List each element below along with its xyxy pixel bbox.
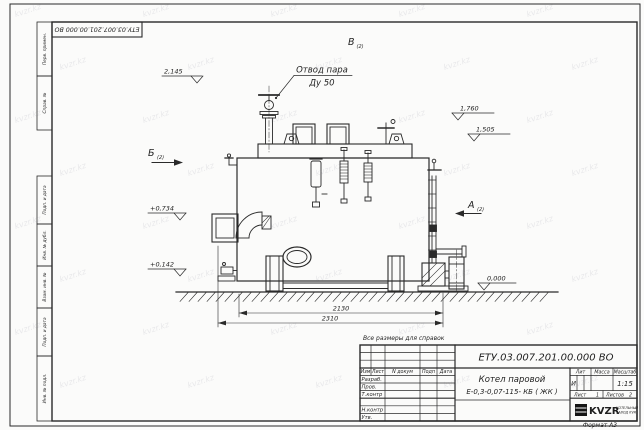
dim-inner-length: 2130	[333, 305, 350, 313]
tb-scale-header: Масштаб	[614, 370, 637, 376]
margin-label: Справ. №	[42, 92, 48, 113]
margin-strip: Перв. примен. Справ. № Подп. и дата Инв.…	[37, 22, 52, 421]
tb-scale-value: 1:15	[617, 380, 633, 388]
tb-row-razrab: Разраб.	[362, 377, 382, 383]
margin-label: Инв. № подл.	[42, 374, 48, 404]
view-a-label: А	[467, 200, 475, 211]
tb-col-podp: Подп	[422, 369, 435, 375]
drain-fittings	[218, 263, 237, 282]
tb-col-ndoc: N докум	[392, 369, 413, 375]
margin-label: Инв. № дубл.	[42, 230, 48, 259]
margin-label: Перв. примен.	[42, 33, 48, 65]
safety-valve	[340, 148, 348, 204]
elevation-value: 2,145	[164, 68, 183, 76]
doc-number-rotated: ЕТУ.03.007.201.00.000 ВО	[54, 26, 139, 33]
margin-label: Взам. инв. №	[42, 272, 48, 302]
elevation-value: +0,142	[150, 261, 174, 269]
kvzr-logo: KVZR КОТЕЛЬНЫЙ ЗАВОД KVR	[575, 404, 638, 417]
doc-number-stamp-top: ЕТУ.03.007.201.00.000 ВО	[52, 22, 142, 37]
boiler-drawing-svg: Перв. примен. Справ. № Подп. и дата Инв.…	[0, 0, 644, 430]
dimensions: 2130 2310	[218, 246, 443, 327]
tb-row-tkontr: Т.контр	[362, 392, 384, 398]
tb-lit-value: И	[571, 380, 576, 388]
elevation-value: 0,000	[487, 275, 506, 283]
platform-valve	[378, 120, 395, 145]
ground-line	[176, 292, 558, 302]
tb-row-prov: Пров.	[362, 385, 377, 391]
view-v-label: В	[348, 37, 355, 48]
elevation-value: +0,734	[150, 205, 174, 213]
titleblock: ЕТУ.03.007.201.00.000 ВО Изм Лист N доку…	[360, 345, 638, 421]
elevation-1760: 1,760	[452, 105, 494, 121]
tb-product-name-1: Котел паровой	[479, 375, 546, 385]
feed-pump-unit	[418, 246, 468, 292]
tb-col-izm: Изм	[361, 369, 371, 375]
kvzr-logo-sub1: КОТЕЛЬНЫЙ	[616, 405, 638, 410]
steam-outlet-label: Отвод пара	[296, 66, 348, 76]
boiler-view	[176, 86, 558, 302]
tb-lit-header: Лит	[575, 370, 586, 376]
view-b-ref: (2)	[157, 155, 164, 161]
left-tap-valve	[225, 154, 237, 165]
elevation-0000: 0,000	[478, 275, 516, 291]
burner-assembly	[212, 212, 271, 242]
elevation-2145: 2,145	[162, 68, 203, 84]
water-level-column	[310, 159, 327, 207]
tb-doc-number: ЕТУ.03.007.201.00.000 ВО	[478, 353, 613, 364]
tb-sheets-label: Листов	[605, 393, 624, 399]
elevation-0142: +0,142	[148, 261, 186, 277]
view-a-ref: (2)	[477, 207, 484, 213]
view-marker-b: Б (2)	[148, 148, 183, 166]
margin-label: Подп. и дата	[42, 185, 48, 215]
elevation-value: 1,760	[460, 105, 479, 113]
top-hatch-box	[293, 124, 349, 144]
manhole	[283, 247, 311, 267]
tb-col-list: Лист	[371, 369, 384, 375]
view-marker-v: В (2)	[348, 37, 364, 50]
reference-note: Все размеры для справок	[363, 335, 445, 342]
elevation-1505: 1,505	[468, 126, 510, 142]
drawing-sheet: Перв. примен. Справ. № Подп. и дата Инв.…	[0, 0, 644, 430]
right-manifold	[428, 159, 441, 262]
steam-outlet-dn: Ду 50	[308, 79, 334, 89]
elevation-0734: +0,734	[148, 205, 186, 221]
tb-sheet-no: 1	[596, 393, 599, 399]
tb-row-nkontr: Н.контр	[362, 407, 384, 413]
steam-outlet-callout: Отвод пара Ду 50	[275, 66, 352, 100]
top-platform	[258, 144, 412, 158]
tb-mass-header: Масса	[594, 370, 609, 376]
format-label: Формат А3	[583, 422, 617, 429]
annotations: Отвод пара Ду 50 В (2) Б (2) А (2)	[148, 37, 516, 290]
tb-product-name-2: Е-0,3-0,07-115- КБ ( ЖК )	[466, 388, 558, 396]
view-v-ref: (2)	[357, 44, 364, 50]
view-marker-a: А (2)	[455, 200, 484, 217]
elevation-value: 1,505	[476, 126, 495, 134]
view-b-label: Б	[148, 148, 155, 159]
steam-outlet-valve	[259, 86, 279, 152]
support-pedestal	[266, 256, 404, 291]
tb-col-data: Дата	[439, 369, 452, 375]
tb-row-utv: Утв.	[362, 415, 373, 421]
kvzr-logo-sub2: ЗАВОД KVR	[616, 411, 637, 415]
dim-outer-length: 2310	[322, 315, 339, 323]
tb-sheet-label: Лист	[573, 393, 586, 399]
margin-label: Подп. и дата	[42, 317, 48, 347]
tb-sheets-no: 2	[629, 393, 632, 399]
